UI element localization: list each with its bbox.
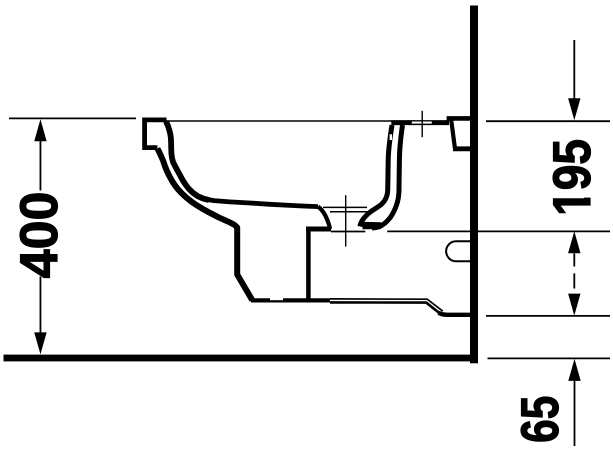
svg-text:195: 195 bbox=[542, 139, 602, 216]
svg-text:400: 400 bbox=[11, 192, 70, 279]
svg-text:65: 65 bbox=[511, 396, 570, 443]
